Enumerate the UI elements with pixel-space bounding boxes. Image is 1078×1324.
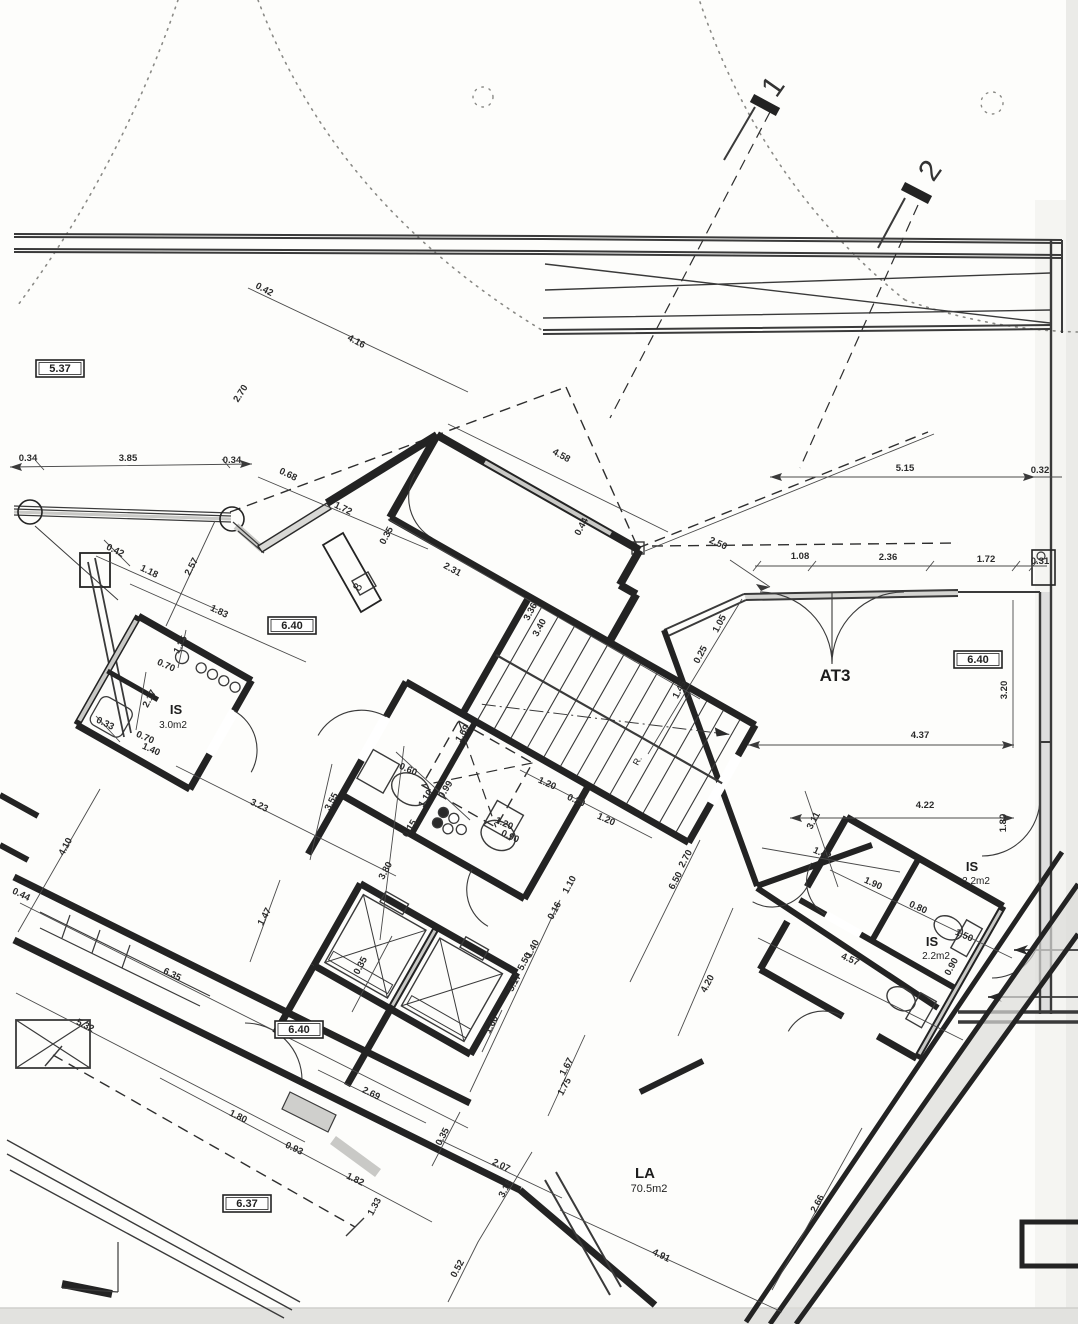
fixture-icon — [206, 668, 220, 682]
dim-label: 0.35 — [352, 954, 371, 976]
room-label: IS — [170, 702, 183, 717]
dim-label: 0.34 — [223, 455, 242, 466]
dim-label: 0.31 — [1031, 556, 1050, 567]
dim-label: 0.35 — [378, 524, 397, 546]
dim-label: 0.68 — [277, 466, 298, 484]
dim-label: 0.93 — [283, 1140, 304, 1158]
dim-label: 2.36 — [879, 552, 898, 563]
dim-label: 4.20 — [699, 973, 717, 994]
dim-label: 4.91 — [650, 1247, 672, 1265]
dim-label: 1.72 — [977, 554, 996, 565]
dim-label: 1.47 — [256, 906, 274, 927]
dim-label: 0.16 — [546, 900, 564, 921]
floor-plan-page: 0.424.162.700.343.850.340.681.720.354.58… — [0, 0, 1078, 1324]
dim-label: 0.25 — [692, 643, 711, 665]
level-label: 6.40 — [288, 1024, 309, 1036]
dim-label: 3.11 — [805, 810, 823, 832]
fixture-icon — [217, 674, 231, 688]
dim-label: 1.90 — [862, 875, 883, 893]
fence — [14, 500, 264, 600]
room-label: IS — [966, 859, 979, 874]
level-label: 6.40 — [967, 654, 988, 666]
dim-label: 0.34 — [19, 453, 38, 464]
dim-label: 1.72 — [332, 500, 353, 518]
room-label: 2.2m2 — [962, 876, 990, 887]
level-label: 5.37 — [49, 363, 70, 375]
dim-label: 0.33 — [94, 715, 115, 733]
dim-label: 2.70 — [677, 848, 695, 869]
section-1-tick-icon — [752, 98, 778, 112]
floor-plan-drawing: 0.424.162.700.343.850.340.681.720.354.58… — [0, 0, 1078, 1324]
dim-label: 6.50 — [667, 870, 685, 891]
dim-label: 3.20 — [999, 681, 1010, 700]
dim-label: 0.32 — [1031, 465, 1050, 476]
dim-label: 1.82 — [344, 1171, 365, 1189]
dim-label: 3.80 — [377, 860, 395, 881]
dim-label: 1.33 — [366, 1196, 384, 1217]
dim-label: 1.10 — [561, 874, 579, 895]
stair-arrow-icon — [711, 727, 729, 742]
fixture-icon — [228, 680, 242, 694]
wc-bowl-icon — [883, 982, 920, 1016]
pier-8 — [323, 533, 381, 612]
dim-label: 3.85 — [119, 453, 138, 464]
dim-label: 2.07 — [490, 1157, 511, 1175]
dim-label: 2.50 — [707, 535, 728, 553]
walkway-band — [746, 852, 1078, 1324]
section-2-tick-icon — [903, 186, 930, 200]
room-label: 8 — [350, 580, 366, 593]
road-band — [14, 234, 1062, 334]
room-label: 3.0m2 — [159, 720, 187, 731]
dim-label: 4.37 — [911, 730, 930, 741]
dim-label: 0.80 — [907, 899, 928, 917]
double-door-arc-icon — [760, 592, 904, 664]
room-label: 2.2m2 — [922, 951, 950, 962]
dim-label: 1.18 — [138, 563, 159, 581]
surv-point-icon — [473, 87, 493, 107]
lower-site-walls — [7, 877, 703, 1318]
dim-label: 1.75 — [556, 1075, 575, 1097]
dim-label: 1.50 — [953, 927, 974, 945]
dim-label: 3.40 — [531, 617, 549, 638]
dim-label: 3.23 — [248, 797, 269, 815]
section-number-label: 2 — [912, 154, 949, 187]
dim-label: 4.10 — [57, 836, 75, 857]
dim-label: 2.70 — [231, 383, 250, 405]
room-label: AT3 — [820, 666, 851, 685]
dim-label: 2.57 — [183, 556, 201, 577]
room-label: R. — [631, 754, 644, 767]
dim-label: 0.42 — [253, 281, 274, 299]
dim-label: 1.20 — [536, 775, 557, 793]
fixture-dots-icon — [431, 806, 471, 842]
dim-label: 5.15 — [896, 463, 915, 474]
room-label: LA — [635, 1165, 655, 1182]
dim-label: 0.70 — [155, 657, 176, 675]
dim-label: 4.22 — [916, 800, 935, 811]
level-label: 6.37 — [236, 1198, 257, 1210]
dim-label: 0.44 — [10, 886, 32, 904]
room-label: IS — [926, 934, 939, 949]
dim-label: 4.16 — [345, 333, 366, 351]
dim-label: 1.80 — [998, 814, 1009, 833]
level-label: 6.40 — [281, 620, 302, 632]
dim-label: 4.58 — [550, 447, 572, 466]
main-building — [0, 351, 1067, 1323]
room-label: 70.5m2 — [631, 1183, 668, 1195]
fixture-icon — [194, 661, 208, 675]
dim-label: 0.42 — [104, 542, 125, 560]
dim-label: 2.31 — [441, 561, 463, 580]
dim-label: 1.67 — [558, 1056, 576, 1077]
dim-label: 1.40 — [140, 741, 161, 759]
dim-label: 1.08 — [791, 551, 810, 562]
stair-direction-line — [482, 621, 729, 818]
dim-label: 1.83 — [208, 603, 229, 621]
dim-label: 0.90 — [499, 828, 520, 846]
surv-point-icon — [981, 92, 1003, 114]
dim-label: 1.20 — [595, 811, 616, 829]
